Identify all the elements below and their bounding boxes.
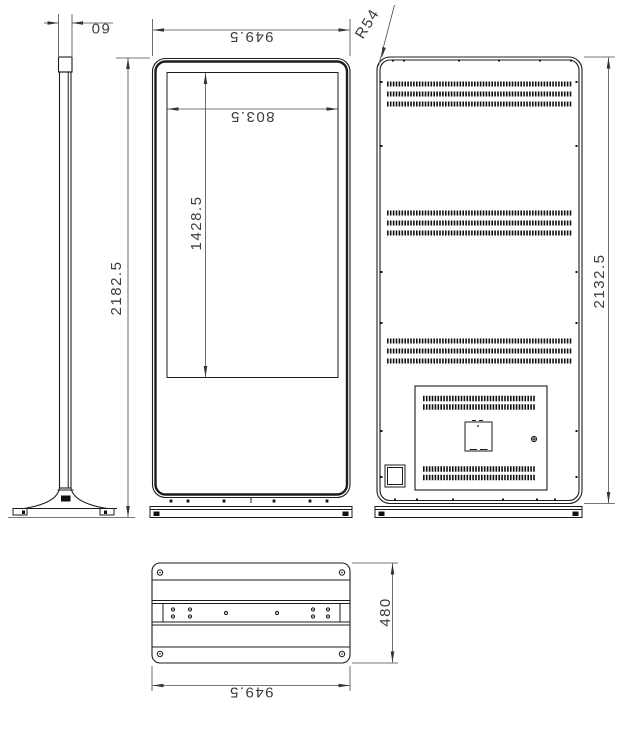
arrowhead bbox=[339, 684, 350, 688]
dim-cabinet-height: 2132.5 bbox=[584, 57, 615, 504]
dim-screen-height-label: 1428.5 bbox=[188, 196, 205, 251]
arrowhead bbox=[204, 73, 208, 84]
arrowhead bbox=[391, 652, 395, 663]
dim-side-thickness-label: 60 bbox=[90, 20, 110, 37]
base-mount-holes bbox=[171, 608, 329, 618]
arrowhead bbox=[126, 506, 130, 517]
arrowhead bbox=[391, 564, 395, 575]
base-plate-view bbox=[152, 563, 350, 663]
side-column bbox=[60, 72, 72, 488]
back-access-panel bbox=[415, 386, 547, 490]
side-base-flare-right bbox=[71, 488, 117, 509]
dim-base-width-label: 949.5 bbox=[228, 684, 273, 701]
drawing-sheet: 60 2182.5 bbox=[0, 0, 618, 740]
back-vent-group-middle bbox=[387, 213, 572, 233]
dim-screen-height: 1428.5 bbox=[188, 73, 207, 377]
back-outer-body bbox=[377, 57, 582, 504]
dim-cabinet-height-label: 2132.5 bbox=[591, 254, 608, 309]
side-base-flare-left bbox=[14, 488, 60, 509]
dim-base-width: 949.5 bbox=[152, 666, 350, 701]
dim-overall-height-label: 2182.5 bbox=[108, 261, 125, 316]
back-perimeter-screws bbox=[381, 60, 578, 501]
technical-drawing: 60 2182.5 bbox=[0, 0, 618, 740]
back-vent-group-lower bbox=[387, 341, 572, 361]
arrowhead bbox=[48, 21, 59, 24]
arrowhead bbox=[327, 107, 338, 111]
dim-overall-height: 2182.5 bbox=[108, 58, 150, 517]
front-bezel bbox=[156, 62, 348, 495]
arrowhead bbox=[607, 58, 611, 69]
dim-screen-width: 803.5 bbox=[168, 107, 338, 125]
front-view bbox=[150, 59, 352, 518]
side-foot-left-mark bbox=[22, 511, 25, 515]
arrowhead bbox=[153, 28, 164, 32]
front-bottom-feet bbox=[170, 498, 329, 504]
side-foot-right-mark bbox=[104, 511, 107, 515]
front-base-plate bbox=[150, 507, 352, 518]
dim-base-depth-label: 480 bbox=[377, 597, 394, 627]
arrowhead bbox=[168, 107, 179, 111]
back-vent-group-top bbox=[387, 84, 572, 104]
arrowhead bbox=[204, 366, 208, 377]
back-view bbox=[375, 57, 582, 518]
base-plate-ribs bbox=[152, 580, 350, 647]
access-panel-frame bbox=[415, 386, 547, 490]
side-base-block bbox=[61, 496, 71, 502]
side-top-cap bbox=[59, 57, 73, 72]
dim-corner-radius-label: R54 bbox=[352, 6, 383, 42]
arrowhead bbox=[382, 47, 386, 58]
dim-side-thickness: 60 bbox=[44, 14, 113, 56]
base-corner-screws bbox=[157, 570, 344, 657]
back-base-plate bbox=[375, 507, 582, 518]
dim-screen-width-label: 803.5 bbox=[229, 108, 274, 125]
arrowhead bbox=[607, 492, 611, 503]
arrowhead bbox=[339, 28, 350, 32]
back-lock-screw bbox=[531, 436, 537, 442]
dim-cabinet-width: 949.5 bbox=[153, 19, 351, 56]
arrowhead bbox=[153, 684, 164, 688]
base-plate-outline bbox=[152, 563, 350, 663]
back-power-inlet bbox=[385, 465, 405, 487]
arrowhead bbox=[72, 21, 83, 24]
dim-base-depth: 480 bbox=[352, 563, 398, 663]
dim-cabinet-width-label: 949.5 bbox=[228, 28, 273, 45]
back-inner-body bbox=[380, 60, 579, 501]
arrowhead bbox=[126, 58, 130, 69]
